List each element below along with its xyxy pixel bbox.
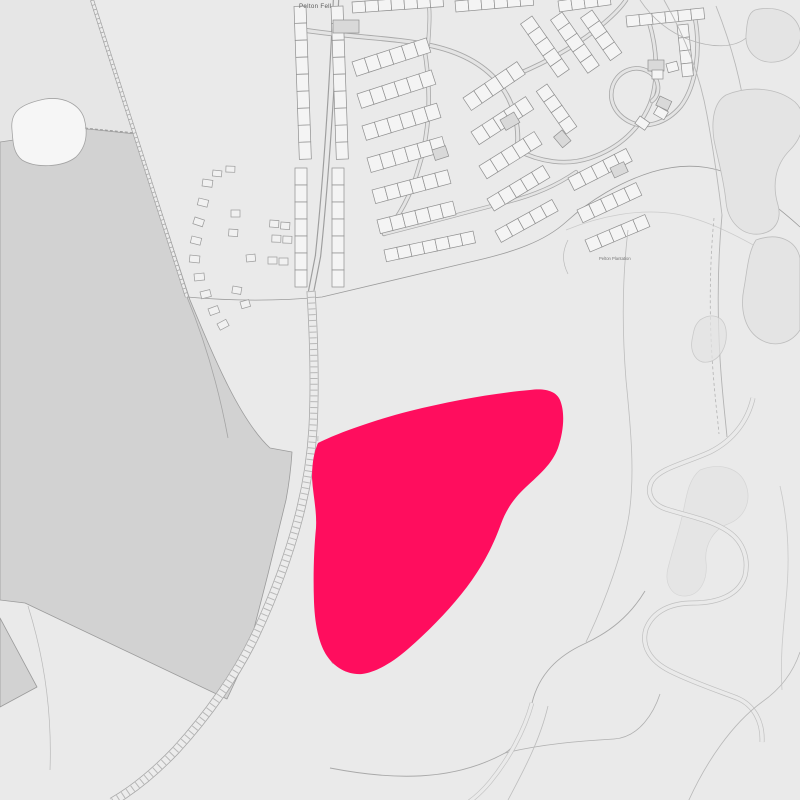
terrace-row — [681, 63, 693, 77]
terrace-row — [295, 270, 307, 287]
terrace-row — [332, 219, 344, 236]
terrace-row — [332, 168, 344, 185]
terrace-row — [584, 0, 598, 8]
map-canvas: Pelton FellPelton Plantation — [0, 0, 800, 800]
terrace-row — [678, 9, 692, 21]
terrace-row — [295, 253, 307, 270]
caravan — [229, 229, 238, 237]
terrace-row — [404, 0, 418, 9]
terrace-row — [332, 270, 344, 287]
caravan — [246, 254, 256, 262]
caravan — [226, 166, 235, 172]
caravan — [279, 258, 288, 265]
dark-building — [648, 60, 664, 71]
terrace-row — [298, 108, 311, 125]
terrace-row — [494, 0, 508, 9]
terrace-row — [691, 8, 705, 20]
pond-clearing — [12, 98, 86, 165]
caravan — [270, 220, 279, 228]
terrace-row — [334, 91, 347, 108]
terrace-row — [680, 50, 692, 64]
terrace-row — [333, 74, 346, 91]
terrace-row — [571, 0, 585, 10]
terrace-row — [335, 108, 348, 125]
terrace-row — [332, 253, 344, 270]
terrace-row — [295, 40, 308, 57]
dark-building — [333, 20, 359, 33]
terrace-row — [468, 0, 482, 11]
caravan — [283, 236, 292, 243]
caravan — [272, 235, 281, 242]
terrace-row — [391, 0, 405, 10]
detached-building — [652, 70, 663, 79]
terrace-row — [336, 142, 349, 159]
place-name-label: Pelton Fell — [299, 3, 332, 10]
terrace-row — [332, 236, 344, 253]
terrace-row — [297, 91, 310, 108]
terrace-row — [455, 0, 469, 12]
terrace-row — [295, 202, 307, 219]
caravan — [268, 257, 277, 264]
terrace-row — [295, 219, 307, 236]
terrace-row — [677, 24, 689, 38]
terrace-row — [332, 202, 344, 219]
terrace-row — [626, 15, 640, 27]
terrace-row — [298, 125, 311, 142]
caravan — [231, 210, 240, 217]
terrace-row — [332, 40, 345, 57]
terrace-row — [430, 0, 444, 8]
caravan — [232, 286, 242, 294]
terrace-row — [417, 0, 431, 8]
terrace-row — [558, 0, 572, 12]
scrub-patch-3 — [743, 237, 800, 344]
terrace-row — [295, 185, 307, 202]
caravan — [202, 179, 213, 187]
terrace-row — [295, 168, 307, 185]
plantation-label: Pelton Plantation — [599, 256, 631, 261]
terrace-row — [520, 0, 534, 6]
terrace-row — [665, 11, 679, 23]
terrace-row — [332, 185, 344, 202]
caravan — [189, 255, 200, 263]
terrace-row — [335, 125, 348, 142]
terrace-row — [507, 0, 521, 7]
terrace-row — [639, 13, 653, 25]
caravan — [194, 273, 205, 281]
terrace-row — [333, 57, 346, 74]
terrace-row — [299, 142, 312, 159]
terrace-row — [678, 37, 690, 51]
map-viewport[interactable]: Pelton FellPelton Plantation — [0, 0, 800, 800]
terrace-row — [352, 1, 366, 13]
terrace-row — [296, 74, 309, 91]
caravan — [212, 170, 222, 177]
terrace-row — [652, 12, 666, 24]
terrace-row — [365, 0, 379, 12]
terrace-row — [481, 0, 495, 10]
scrub-patch-1 — [746, 8, 800, 62]
terrace-row — [295, 236, 307, 253]
terrace-row — [378, 0, 392, 11]
caravan — [281, 222, 290, 230]
terrace-row — [460, 231, 475, 245]
terrace-row — [295, 23, 308, 40]
terrace-row — [296, 57, 309, 74]
